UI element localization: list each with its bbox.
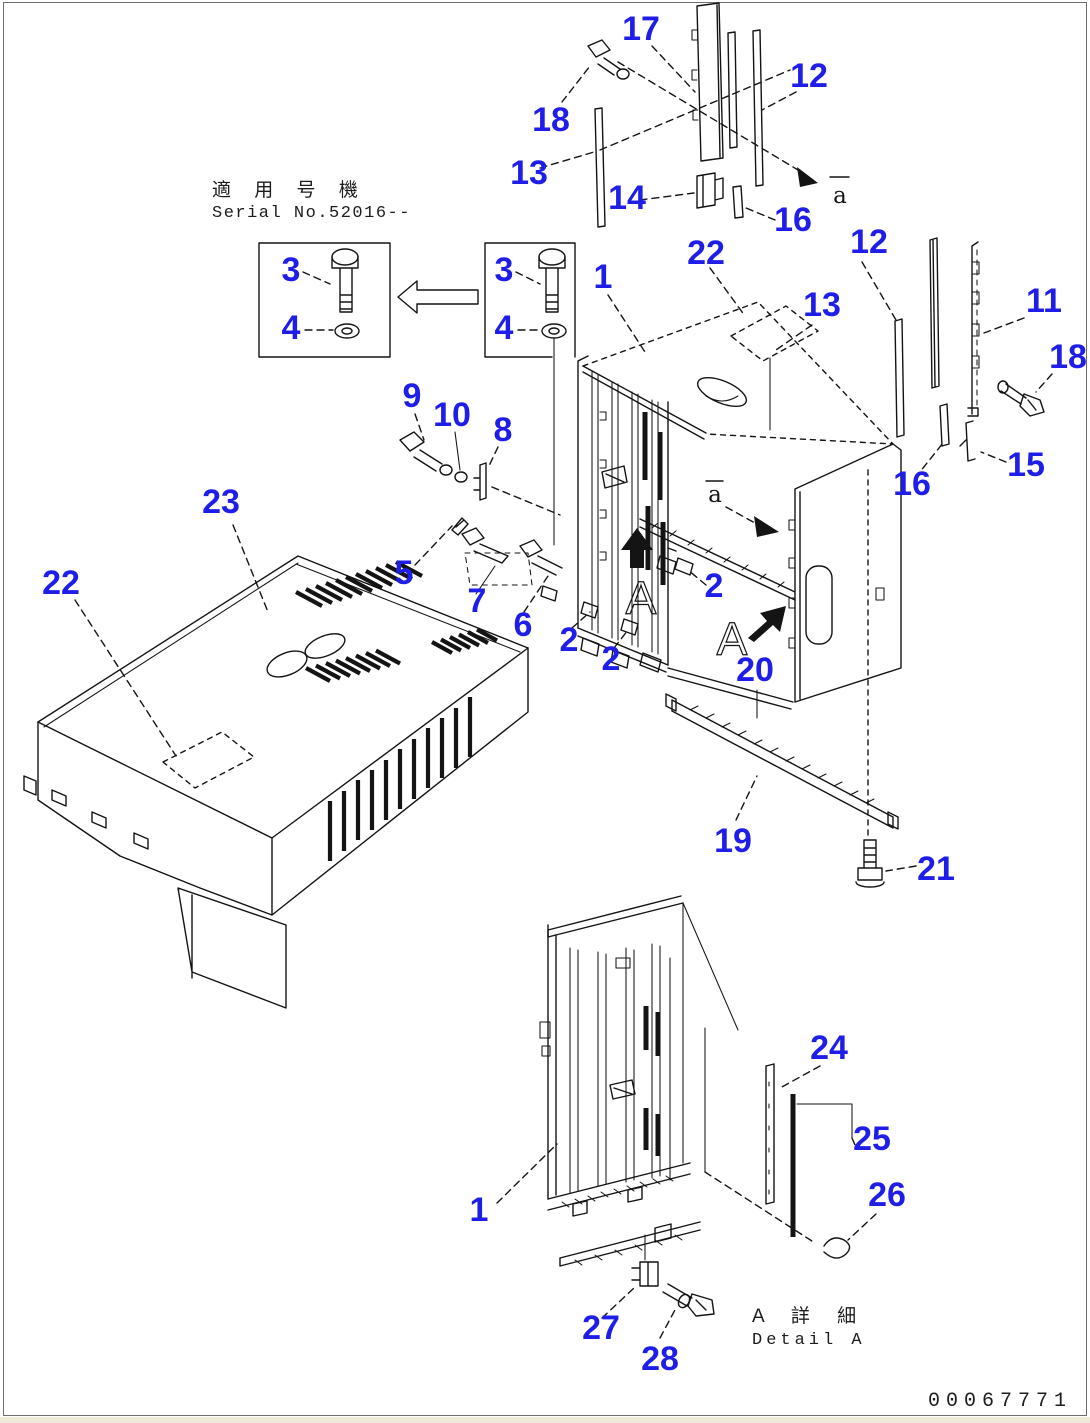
callout-3: 3 [282,251,301,289]
applicability-jp: 適 用 号 機 [212,179,411,203]
callout-8: 8 [494,411,513,449]
callout-13: 13 [510,154,548,192]
callout-numbers: 1718121314162212131118134349108232257622… [42,10,1087,1378]
callout-22: 22 [42,564,80,602]
callout-25: 25 [853,1120,891,1158]
callout-2: 2 [705,567,724,605]
detail-a-ne-arrow-icon [748,606,786,642]
callout-6: 6 [514,606,533,644]
callout-4: 4 [495,309,514,347]
callout-7: 7 [468,582,487,620]
callout-14: 14 [608,179,646,217]
view-label-a: a [833,183,847,209]
callout-11: 11 [1026,282,1062,320]
callout-28: 28 [641,1340,679,1378]
right-strips [895,238,1052,478]
callout-5: 5 [395,554,414,592]
left-arrow-icon [398,281,478,313]
detail-a-panel [497,896,876,1338]
callout-16: 16 [893,465,931,503]
callout-27: 27 [582,1309,620,1347]
callout-18: 18 [1049,338,1087,376]
callout-1: 1 [594,258,613,296]
detail-caption-en: Detail A [752,1330,867,1352]
callout-22: 22 [687,234,725,272]
callout-24: 24 [810,1029,848,1067]
drawing-number: 00067771 [928,1390,1072,1413]
callout-17: 17 [622,10,660,48]
view-a-arrow-icon [797,167,818,187]
callout-26: 26 [868,1176,906,1214]
callout-13: 13 [803,286,841,324]
applicability-serial: Serial No.52016-- [212,203,411,224]
parts-diagram-page: 1718121314162212131118134349108232257622… [0,0,1090,1423]
callout-9: 9 [403,377,422,415]
callout-23: 23 [202,483,240,521]
callout-4: 4 [282,309,301,347]
view-label-A: A [717,613,748,665]
callout-12: 12 [790,57,828,95]
callout-18: 18 [532,101,570,139]
callout-19: 19 [714,822,752,860]
callout-16: 16 [774,201,812,239]
callout-10: 10 [433,396,471,434]
view-label-a: a [708,482,722,508]
view-a-arrow-2-icon [754,516,779,537]
callout-2: 2 [560,621,579,659]
hood [24,525,528,1008]
main-cabinet [541,295,901,836]
view-label-A: A [626,572,657,624]
detail-caption: A 詳 細 Detail A [752,1305,867,1352]
scan-edge [0,1417,1090,1423]
callout-2: 2 [602,640,621,678]
top-strips [540,3,849,227]
exploded-view-drawing: 1718121314162212131118134349108232257622… [0,0,1090,1423]
callout-12: 12 [850,223,888,261]
detail-caption-jp: A 詳 細 [752,1305,867,1330]
callout-3: 3 [495,251,514,289]
applicability-block: 適 用 号 機 Serial No.52016-- [212,179,411,224]
sill-strip-19 [666,694,916,887]
callout-1: 1 [470,1191,489,1229]
callout-15: 15 [1007,446,1045,484]
callout-21: 21 [917,850,955,888]
